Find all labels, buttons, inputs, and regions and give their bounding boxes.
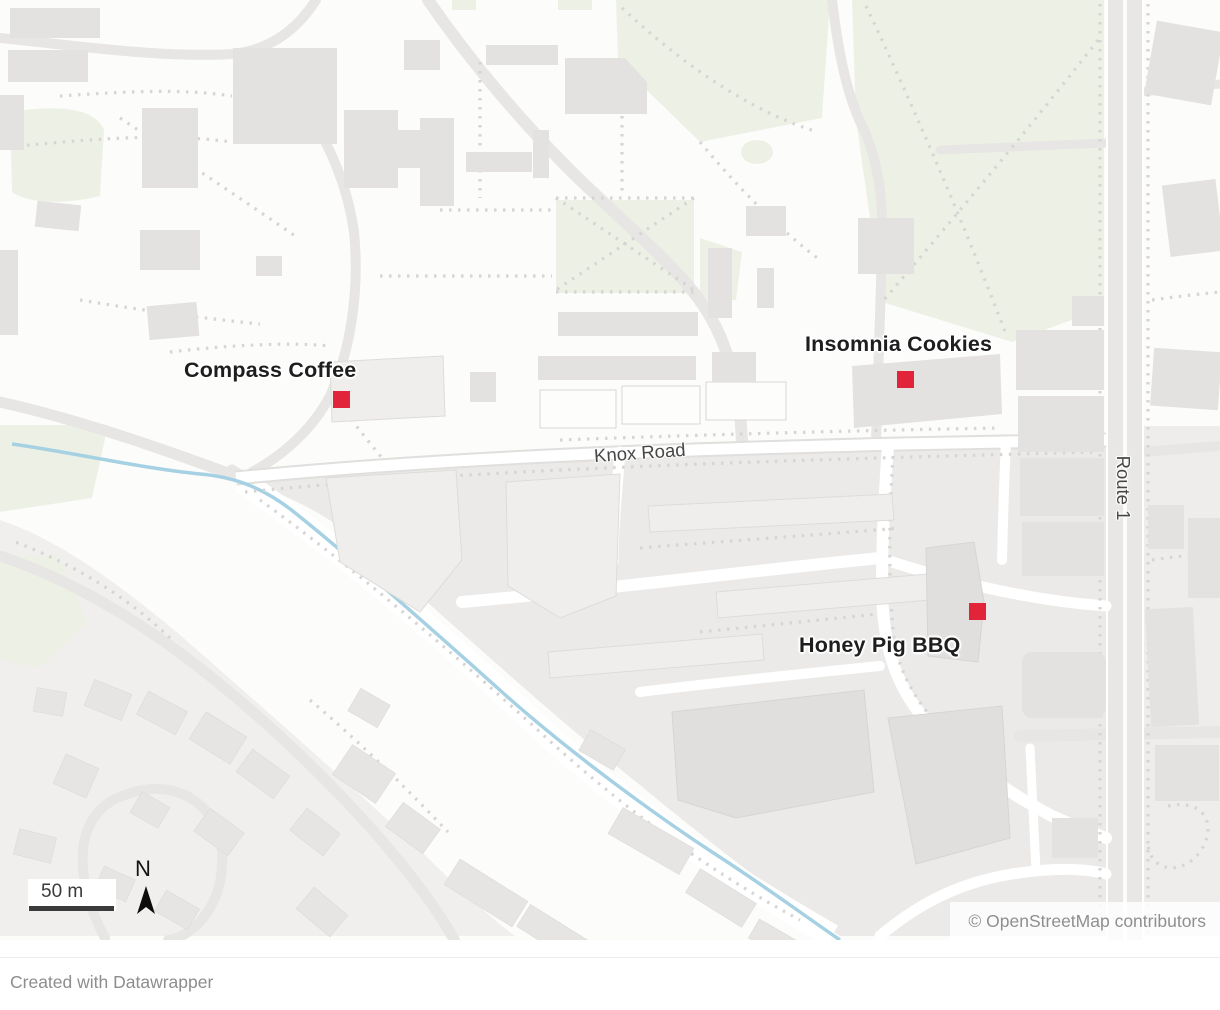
marker-label-insomnia-cookies: Insomnia Cookies <box>805 332 992 357</box>
road-label-route-1: Route 1 <box>1112 450 1134 526</box>
north-label: N <box>135 856 151 882</box>
map-bottom-edge <box>0 940 1220 958</box>
map-attribution: © OpenStreetMap contributors <box>950 902 1220 940</box>
locator-map: Compass Coffee Insomnia Cookies Honey Pi… <box>0 0 1220 940</box>
scale-label: 50 m <box>28 879 116 906</box>
datawrapper-embed: Compass Coffee Insomnia Cookies Honey Pi… <box>0 0 1220 1010</box>
scale-bar-line <box>29 906 114 911</box>
footer-credit: Created with Datawrapper <box>0 958 1220 993</box>
marker-insomnia-cookies-icon <box>897 371 914 388</box>
marker-label-honey-pig-bbq: Honey Pig BBQ <box>799 633 960 658</box>
marker-label-compass-coffee: Compass Coffee <box>184 358 356 383</box>
north-arrow-icon <box>137 886 155 918</box>
marker-honey-pig-bbq-icon <box>969 603 986 620</box>
scale-bar: 50 m <box>28 879 116 911</box>
basemap <box>0 0 1220 940</box>
marker-compass-coffee-icon <box>333 391 350 408</box>
